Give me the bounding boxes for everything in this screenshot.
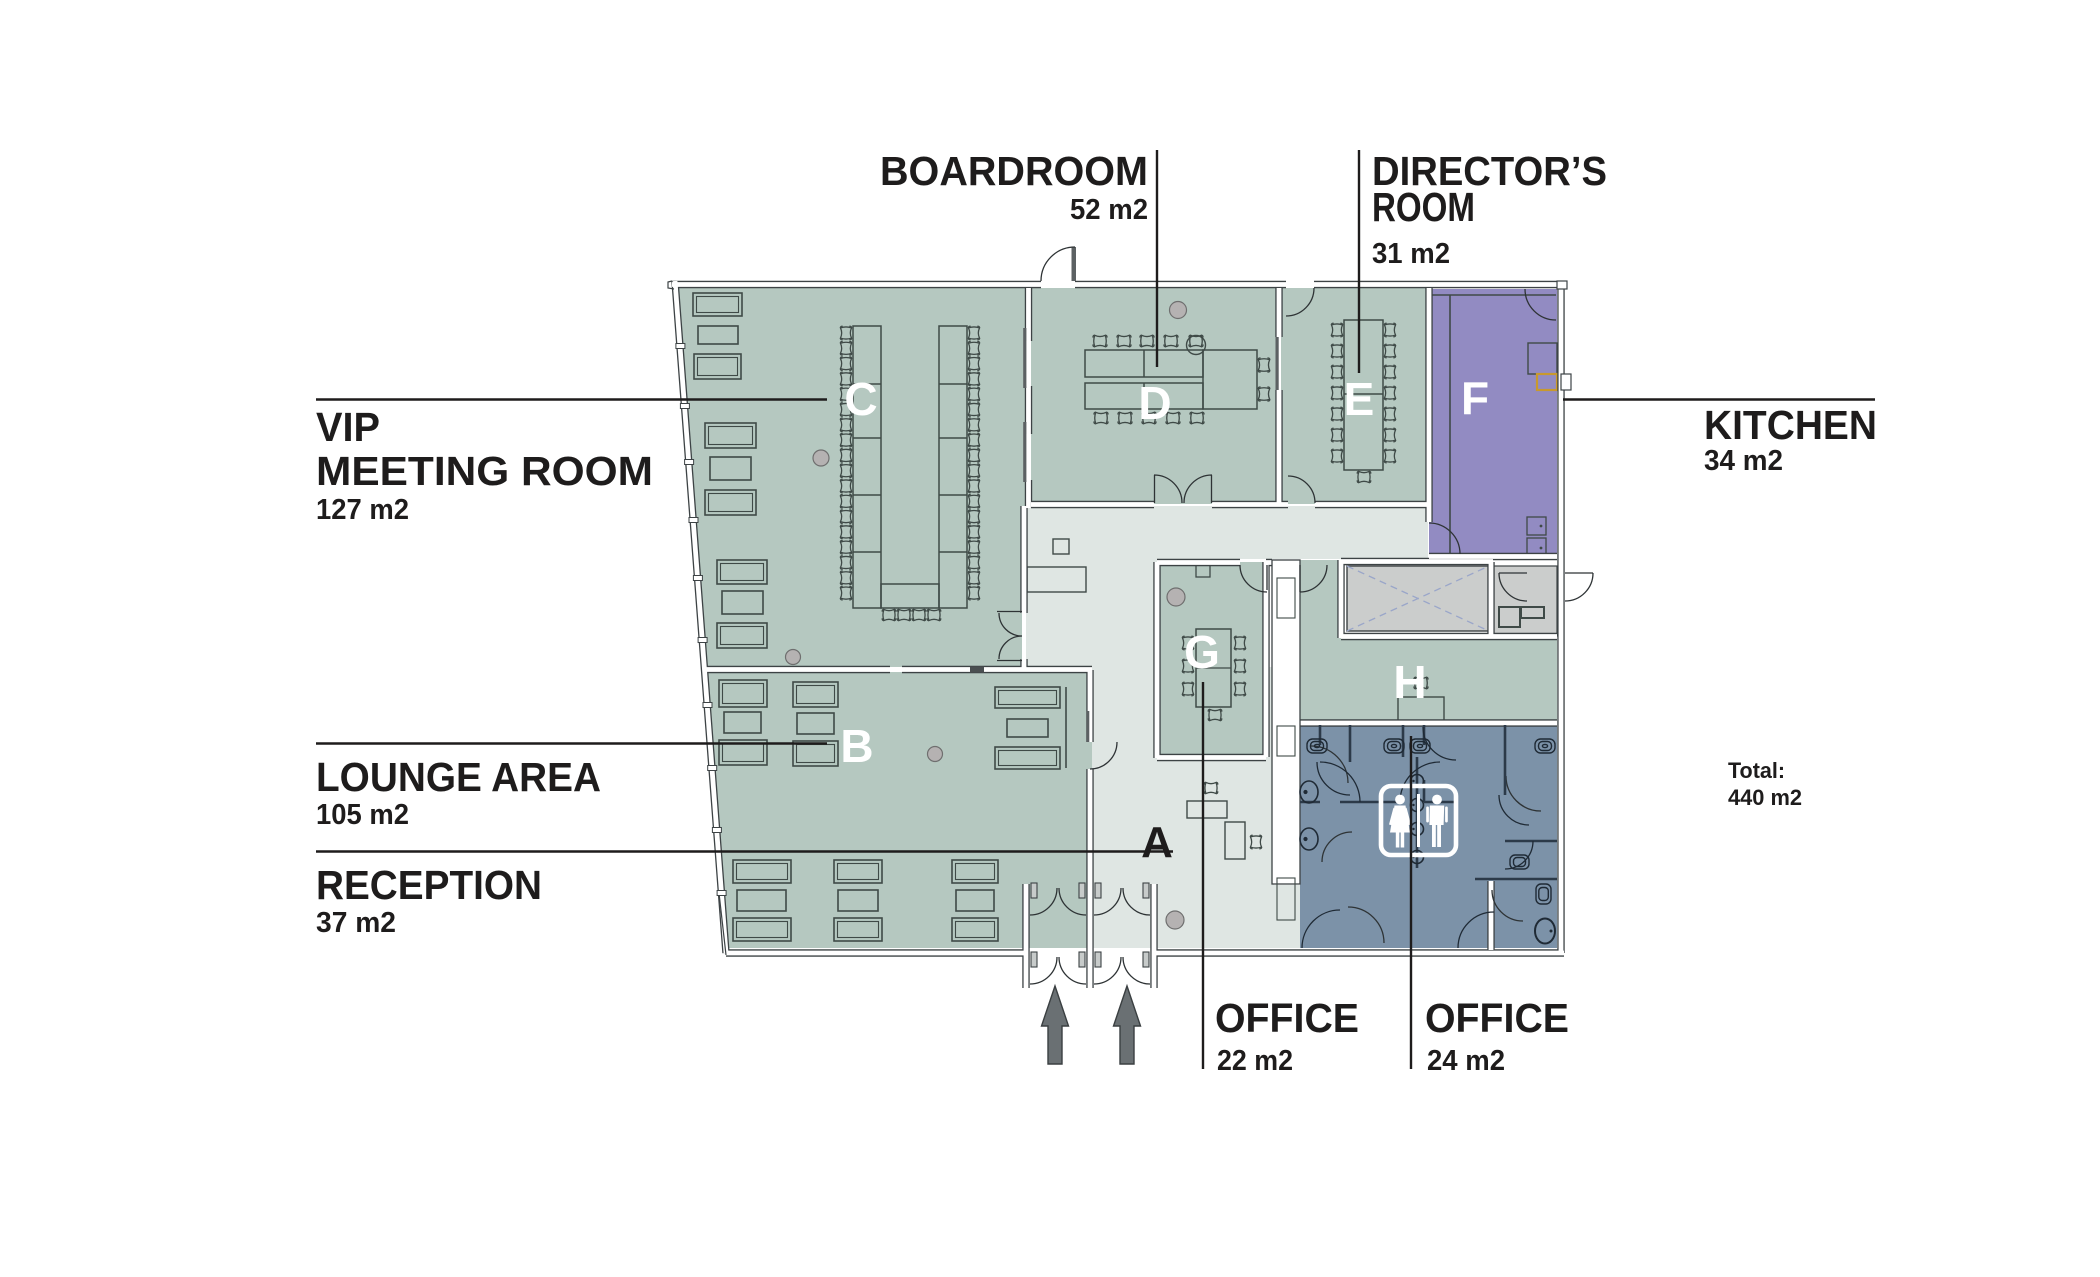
svg-text:F: F — [1461, 372, 1489, 424]
svg-text:KITCHEN: KITCHEN — [1704, 402, 1877, 448]
svg-text:24 m2: 24 m2 — [1427, 1045, 1505, 1077]
svg-text:52 m2: 52 m2 — [1070, 194, 1148, 226]
svg-text:LOUNGE AREA: LOUNGE AREA — [316, 754, 601, 800]
svg-text:D: D — [1138, 377, 1171, 429]
svg-text:B: B — [840, 720, 873, 772]
svg-text:C: C — [844, 373, 877, 425]
svg-text:MEETING ROOM: MEETING ROOM — [316, 448, 653, 494]
svg-text:Total:: Total: — [1728, 758, 1785, 783]
svg-text:E: E — [1344, 373, 1375, 425]
svg-text:A: A — [1141, 818, 1173, 867]
svg-text:VIP: VIP — [316, 404, 380, 450]
svg-text:440 m2: 440 m2 — [1728, 785, 1802, 810]
svg-text:OFFICE: OFFICE — [1425, 995, 1569, 1041]
svg-text:BOARDROOM: BOARDROOM — [880, 148, 1148, 194]
svg-text:G: G — [1184, 626, 1220, 678]
svg-text:37 m2: 37 m2 — [316, 907, 396, 939]
svg-text:105 m2: 105 m2 — [316, 799, 409, 831]
svg-text:31 m2: 31 m2 — [1372, 238, 1450, 270]
svg-text:OFFICE: OFFICE — [1215, 995, 1359, 1041]
svg-text:34 m2: 34 m2 — [1704, 445, 1783, 477]
svg-text:RECEPTION: RECEPTION — [316, 862, 542, 908]
svg-text:ROOM: ROOM — [1372, 184, 1475, 230]
svg-text:H: H — [1393, 656, 1426, 708]
svg-text:22 m2: 22 m2 — [1217, 1045, 1293, 1077]
svg-text:127 m2: 127 m2 — [316, 494, 409, 526]
